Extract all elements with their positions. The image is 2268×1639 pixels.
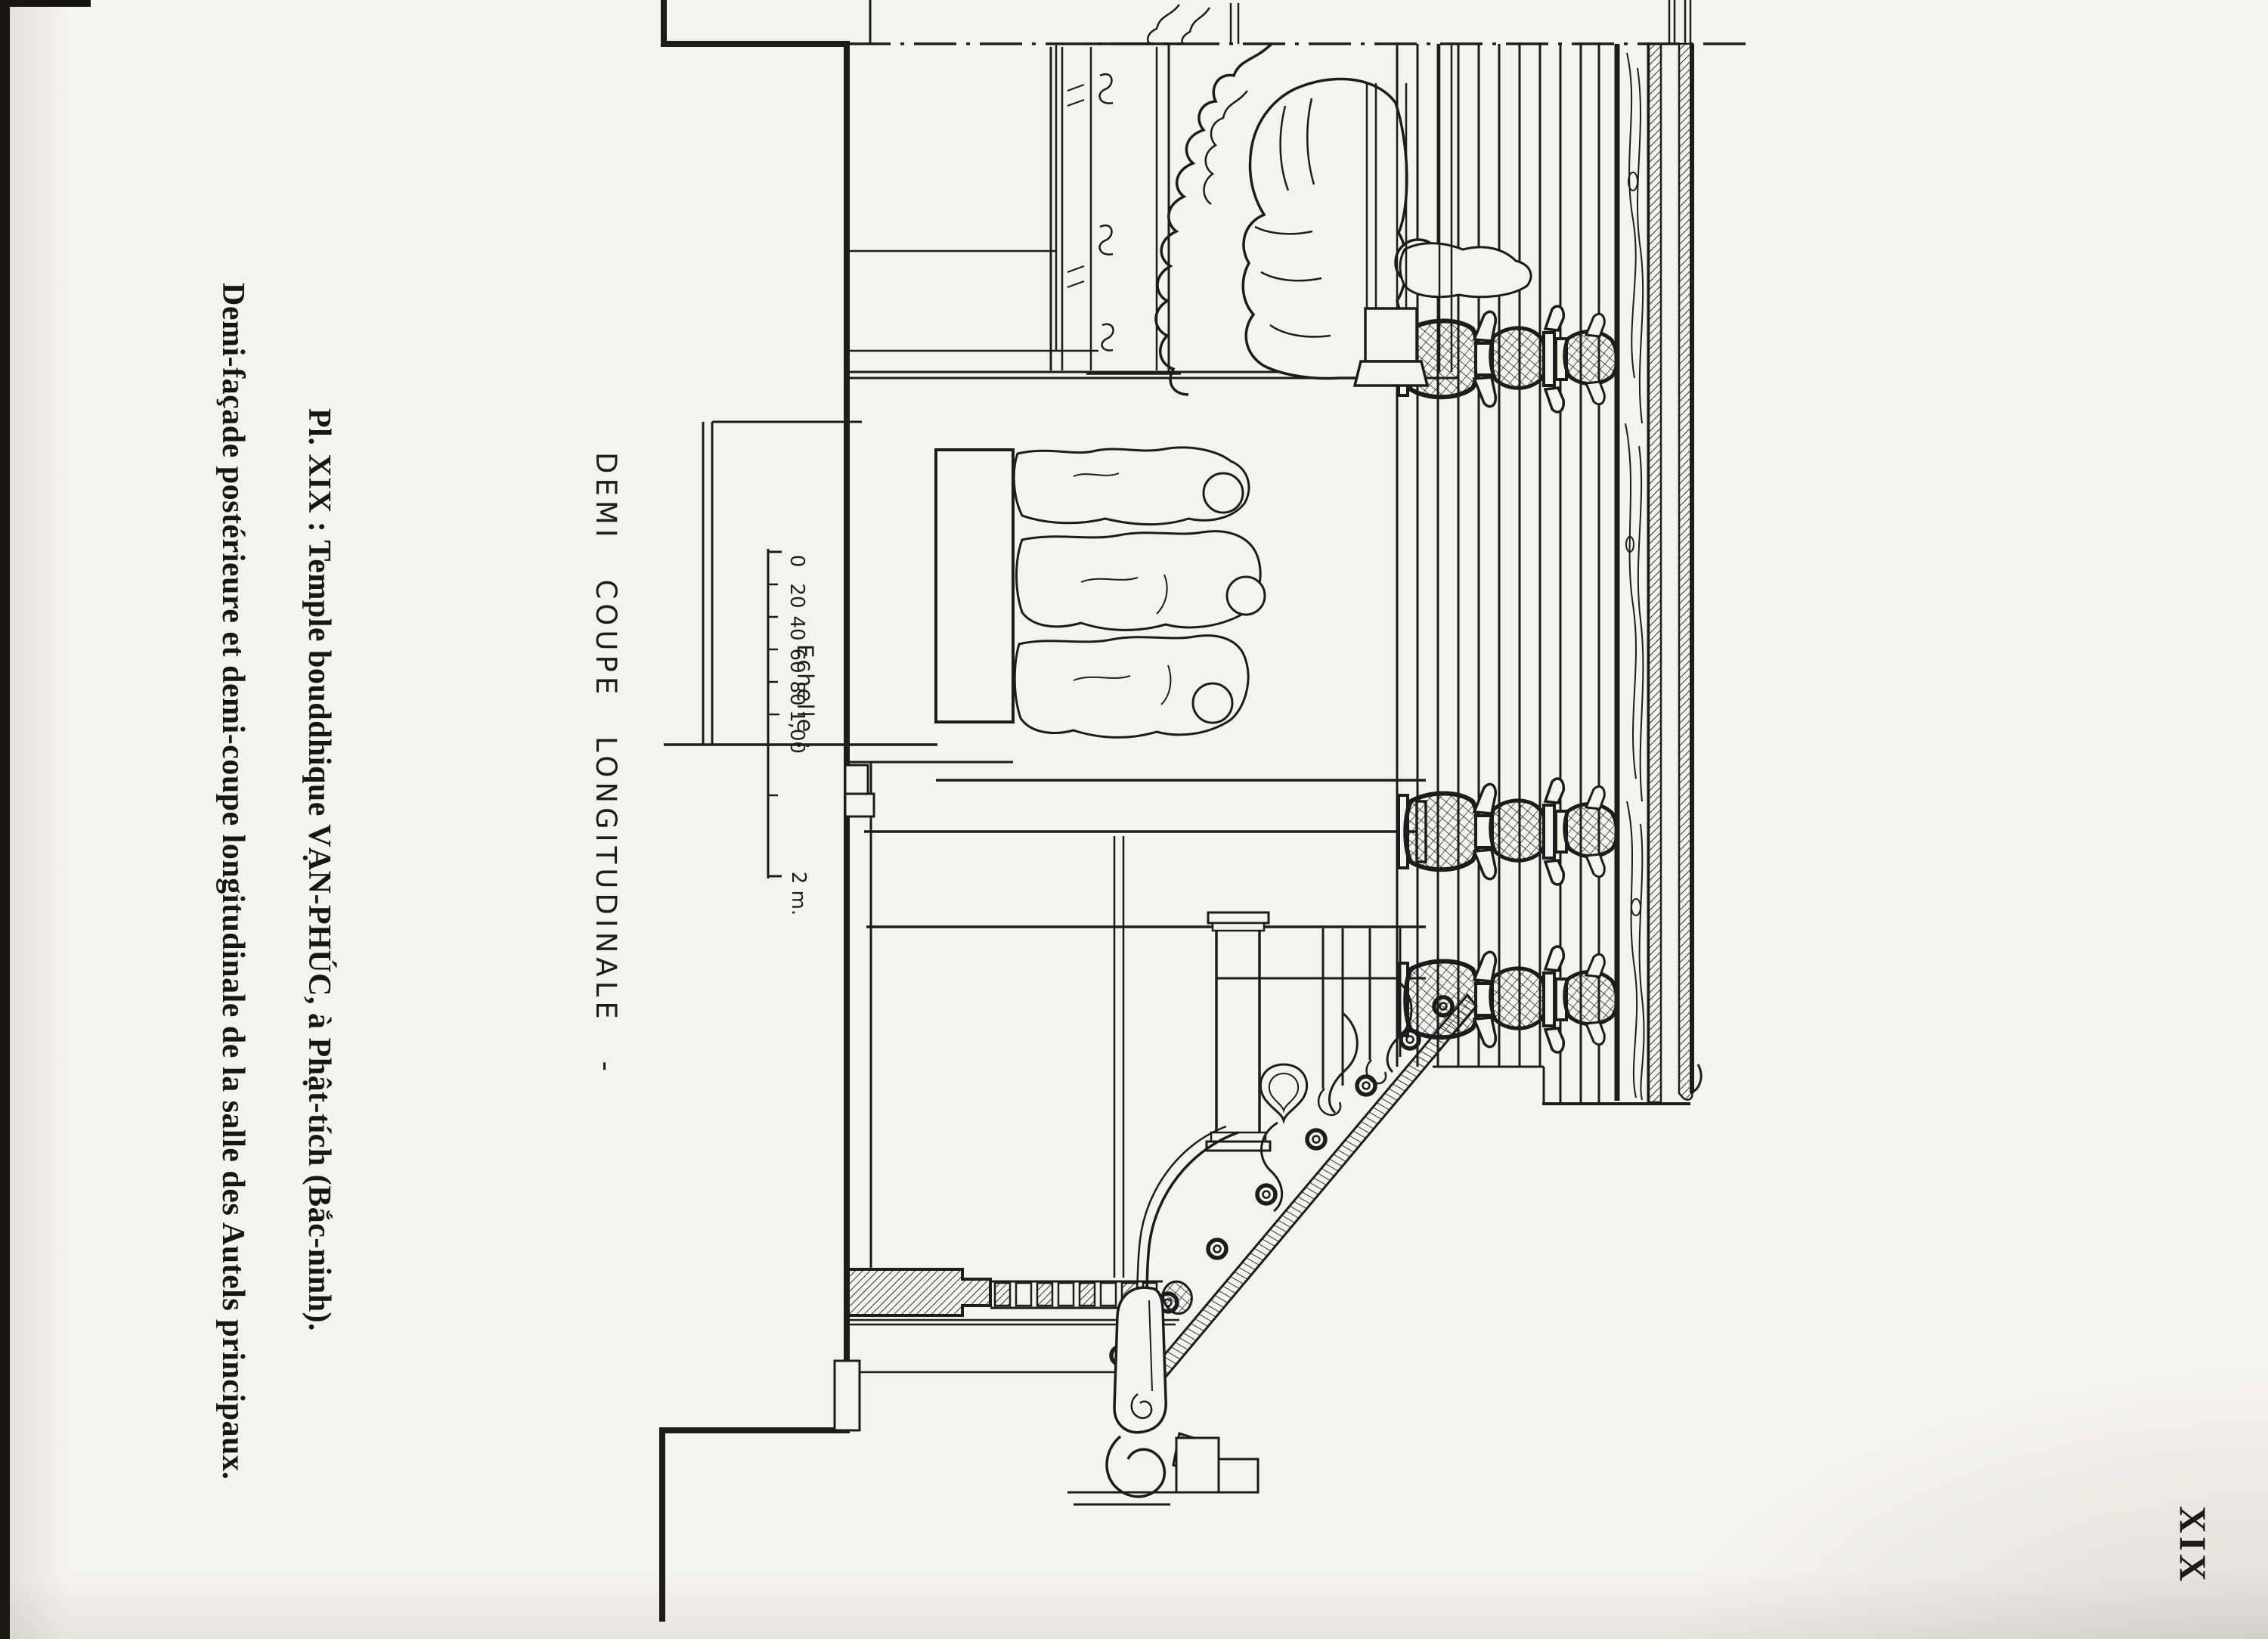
bracket-chain-upper [1399, 306, 1617, 412]
altar-moulding [1051, 44, 1181, 373]
bodhi-leaf-ornament [1260, 1064, 1306, 1211]
scale-tick-80: 80 [785, 680, 808, 705]
scale-tick-100: 1,00 [785, 710, 808, 754]
tile-layer-inner [1649, 44, 1661, 1102]
scanned-plate-page: Pl. XIX : Temple bouddhique VẠN-PHÚC, à … [0, 0, 2268, 1639]
statue-hand [1400, 243, 1531, 297]
temple-section-drawing: 0 20 40 60 80 1,00 2 m. [0, 0, 2268, 1639]
secondary-altar-group [936, 448, 1265, 737]
eave-end-ornament [1067, 1126, 1258, 1504]
sectioned-beam [847, 1269, 990, 1315]
aureole-top-fragment [1148, 5, 1210, 44]
scale-tick-60: 60 [785, 648, 808, 673]
eave-diagonal-band [1126, 995, 1476, 1413]
scale-tick-40: 40 [785, 615, 808, 640]
roof-batten-lines [1397, 44, 1599, 1104]
aureole-inner [1204, 91, 1248, 204]
scale-tick-0: 0 [785, 555, 808, 568]
altar-block [936, 450, 1013, 722]
lintel-post-2 [1318, 928, 1357, 1115]
lintel-post-1 [1207, 912, 1270, 1151]
attendant-statue-2 [1017, 531, 1261, 631]
facade-eave [1067, 995, 1476, 1504]
scale-bar: 0 20 40 60 80 1,00 2 m. [768, 549, 810, 916]
scale-end-label: 2 m. [787, 872, 810, 916]
roof-section-bands [1433, 44, 1701, 1104]
platform-lines [664, 45, 1098, 745]
wood-grain [1625, 53, 1644, 1100]
bracket-chain-middle [1399, 779, 1617, 885]
scale-tick-20: 20 [785, 583, 808, 608]
door-jamb [835, 1361, 860, 1430]
